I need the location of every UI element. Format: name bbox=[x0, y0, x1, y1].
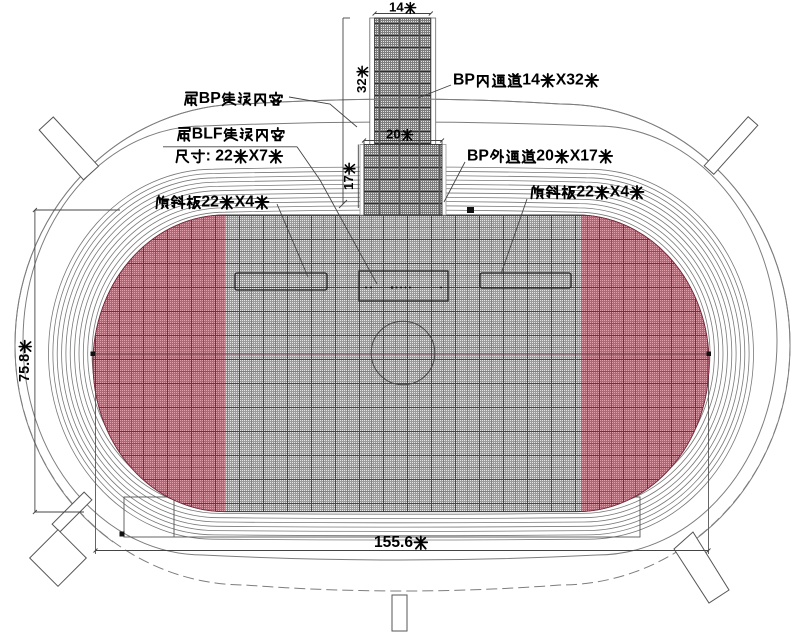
svg-text:BLF: BLF bbox=[192, 126, 223, 143]
svg-text:X32: X32 bbox=[556, 72, 584, 89]
svg-text:32: 32 bbox=[354, 78, 369, 93]
svg-text:X7: X7 bbox=[249, 148, 269, 165]
svg-text:X4: X4 bbox=[610, 184, 630, 201]
svg-text:BP: BP bbox=[453, 72, 475, 89]
svg-text:14: 14 bbox=[389, 0, 404, 15]
svg-text:22: 22 bbox=[201, 194, 219, 211]
svg-text:X17: X17 bbox=[570, 148, 598, 165]
svg-text:: 22: : 22 bbox=[206, 148, 233, 165]
svg-text:BP: BP bbox=[467, 148, 489, 165]
svg-text:17: 17 bbox=[341, 175, 356, 190]
svg-text:BP: BP bbox=[199, 90, 221, 107]
svg-text:20: 20 bbox=[386, 127, 401, 142]
svg-text:155.6: 155.6 bbox=[374, 534, 413, 551]
svg-text:X4: X4 bbox=[235, 194, 255, 211]
svg-text:75.8: 75.8 bbox=[17, 354, 33, 382]
svg-text:20: 20 bbox=[536, 148, 554, 165]
svg-text:14: 14 bbox=[522, 72, 540, 89]
svg-text:22: 22 bbox=[576, 184, 594, 201]
